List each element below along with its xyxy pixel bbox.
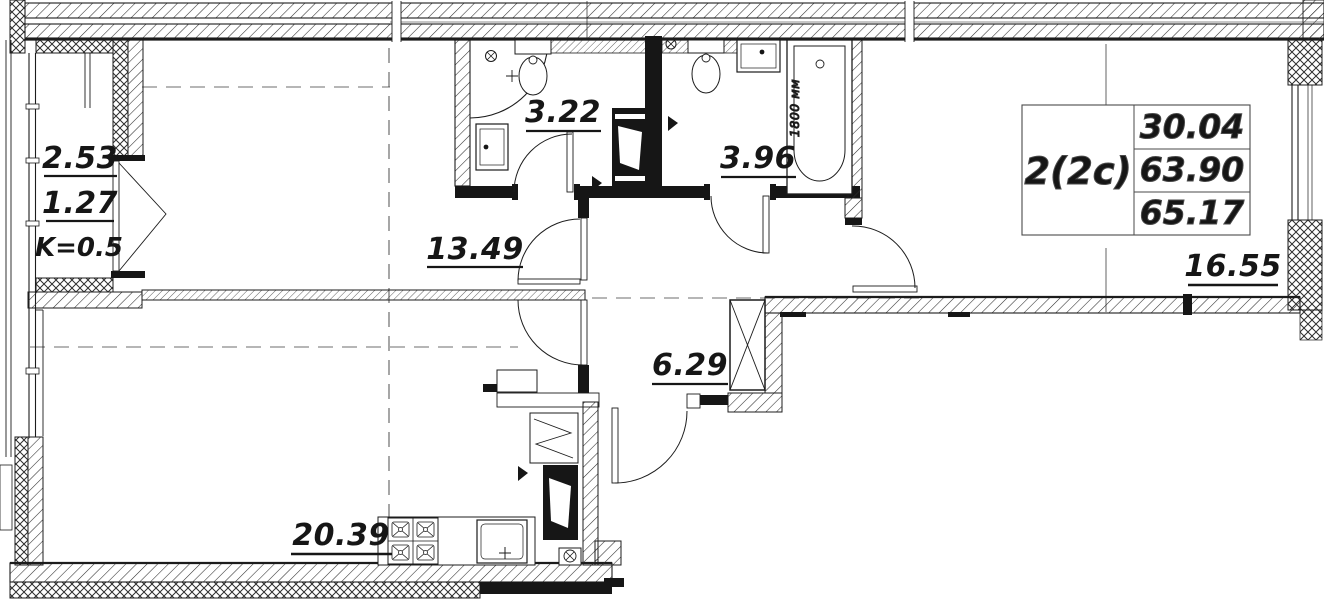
room-a-door-frame [581,218,587,280]
partition-room-kitchen [142,290,585,300]
area-label-hall: 6.29 [652,348,728,383]
jamb-cap [704,184,710,200]
refrigerator-icon [530,413,578,463]
floor-plan-page: 1800 мм [0,0,1324,600]
entrance-wall-side [765,313,782,393]
wall-tick [780,312,806,317]
room-right-bottom-wall [765,297,1300,313]
kitchen-door-leaf [612,408,618,483]
balcony-lower-band [28,292,142,308]
kitchen-wall-jog [595,541,621,565]
hall-partition [581,300,587,365]
unit-main-area: 63.90 [1140,150,1244,189]
room-a-door-leaf [518,279,580,284]
wall-tick [483,384,497,392]
shower-room-door-leaf [567,132,573,192]
area-label-room-b: 16.55 [1184,249,1281,284]
panel-joint-1 [392,1,401,42]
jamb-cap [111,271,145,278]
kitchen-bottom-wall [10,563,612,582]
room-right-door-leaf [853,286,917,292]
entrance-wall-bottom [728,393,782,412]
sink-icon [476,124,508,170]
wall-tick [948,312,970,317]
top-wall-band-inner [25,24,1324,38]
entrance-door-icon [730,300,765,390]
top-right-wall-corner [1303,0,1324,40]
unit-info-box: 2(2c) 30.04 63.90 65.17 [1022,105,1250,235]
area-label-living-kitchen: 20.39 [292,518,389,553]
top-wall-band-outer [25,3,1324,18]
floor-plan-svg: 1800 мм [0,0,1324,600]
wall-divider [1183,294,1192,315]
area-label-shower-room: 3.22 [525,95,601,130]
bottom-wall-black-band [480,582,612,594]
kitchen-left-wall-outer [15,437,28,565]
unit-living-area: 30.04 [1140,107,1244,146]
area-label-bathroom: 3.96 [720,141,796,176]
area-label-balcony-reduced: 1.27 [42,186,118,221]
wall-pier [578,193,589,218]
area-label-room-a: 13.49 [426,232,523,267]
hall-bottom-wall-mid [687,394,700,408]
bathtub-length-label: 1800 мм [787,79,802,137]
stove-icon [388,518,438,564]
shower-room-door-opening [518,184,574,200]
bathtub-icon: 1800 мм [787,40,852,194]
balcony-coefficient-label: K=0.5 [35,233,123,263]
shower-room-ledge [548,40,648,53]
unit-total-area: 65.17 [1140,193,1244,232]
right-wall-lower-block [1300,310,1322,340]
jamb-cap [770,184,776,200]
sink-icon [737,40,780,72]
right-wall-top-block [1288,40,1322,85]
balcony-right-wall-b [128,40,143,160]
wall-tick [604,578,624,587]
room-right-doorwall [845,198,862,218]
panel-joint-2 [905,1,914,42]
jamb-cap [845,218,862,225]
bathroom-door-opening [710,184,770,200]
unit-type-label: 2(2c) [1024,150,1131,193]
washing-machine-icon [612,108,648,188]
vent-shaft-icon [543,465,578,540]
jamb-cap [512,184,518,200]
bathroom-door-leaf [763,196,769,253]
entrance-threshold [700,395,728,405]
balcony-top-wall [36,40,113,53]
balcony-bottom-wall [36,278,113,292]
wall-step [497,370,537,392]
kitchen-left-wall-inner [28,437,43,565]
kitchen-sink-icon [477,520,527,563]
floor-drain-icon [559,548,581,565]
top-left-wall-cap [10,0,25,53]
kitchen-bottom-wall-outer [10,582,480,598]
area-label-balcony-full: 2.53 [42,141,118,176]
wall-pier [578,365,589,393]
shower-room-left-wall [455,40,470,186]
